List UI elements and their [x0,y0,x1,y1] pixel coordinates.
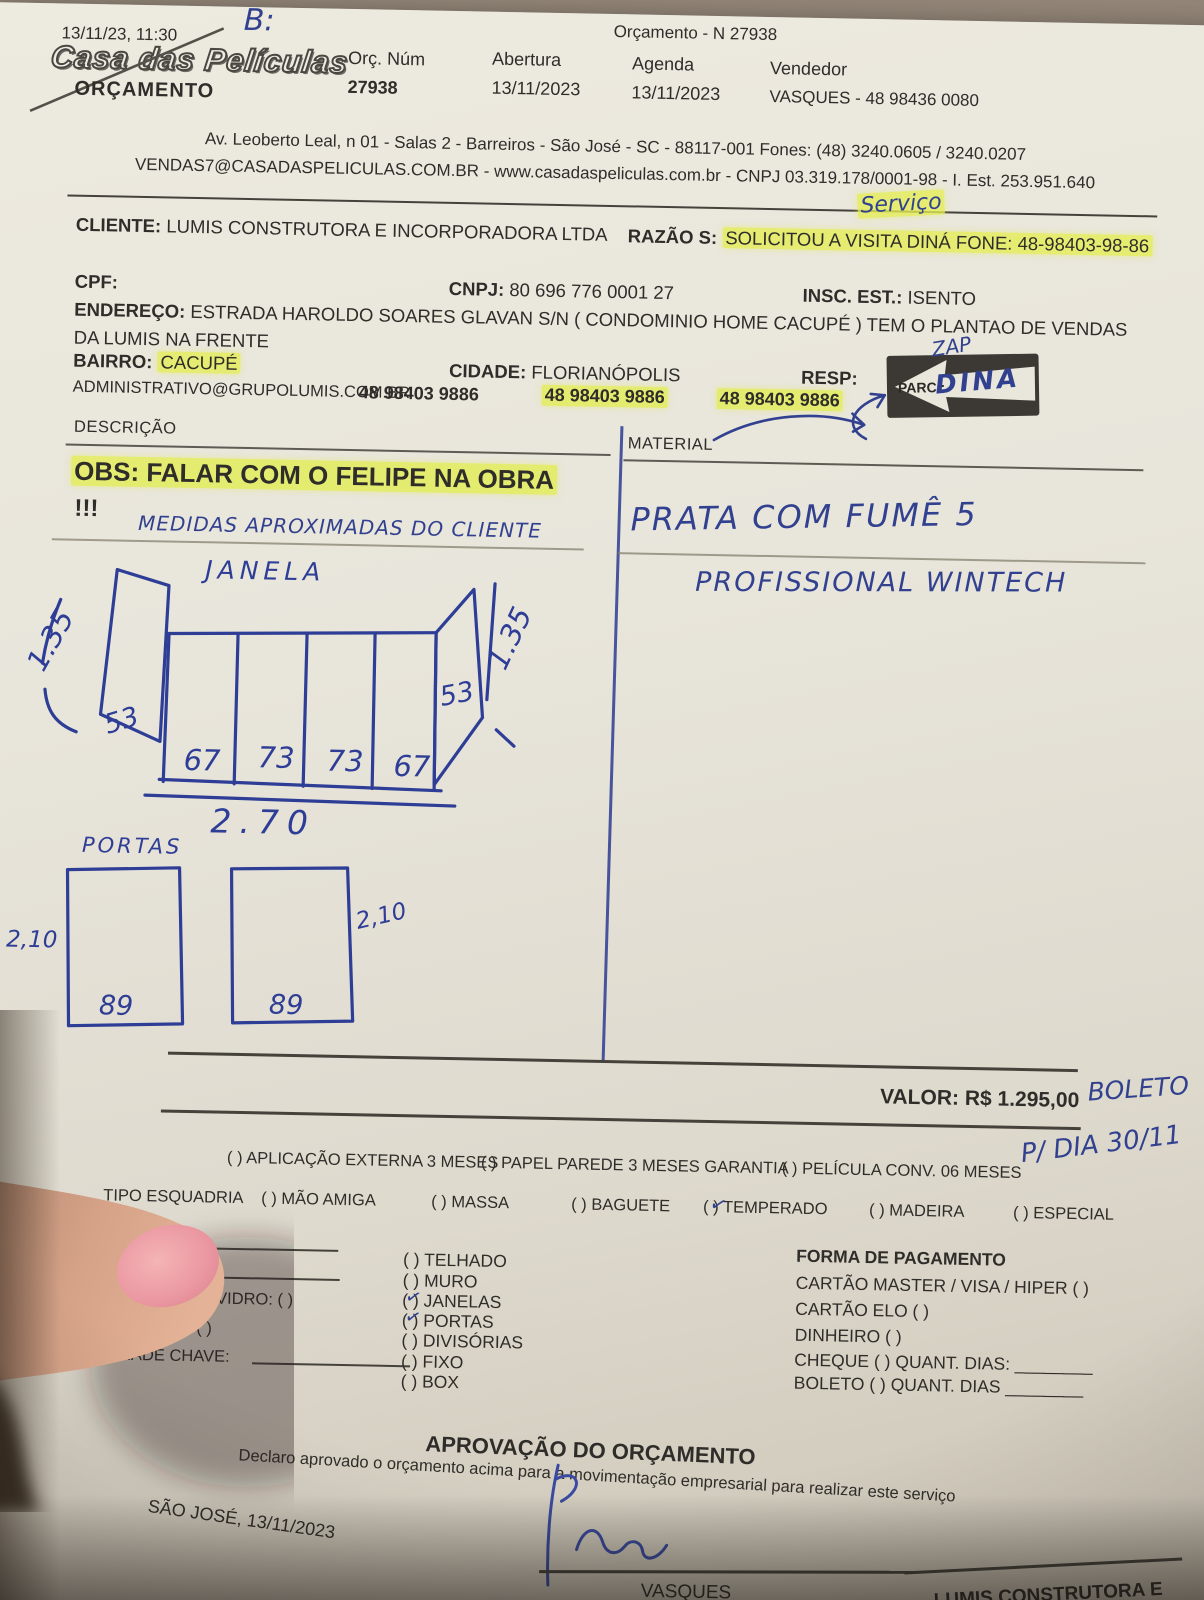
client-signature-name: LUMIS CONSTRUTORA E [933,1579,1163,1600]
valor-value: R$ 1.295,00 [965,1087,1080,1112]
insc-row: INSC. EST.: ISENTO [802,285,976,310]
cpf-label: CPF: [75,271,119,294]
insc-value: ISENTO [907,287,976,309]
cliente-label: CLIENTE: [76,214,162,237]
window-height-right: 1.35 [481,602,539,675]
door-2-width: 89 [269,990,304,1022]
payment-title: FORMA DE PAGAMENTO [796,1246,1006,1271]
cidade-value: FLORIANÓPOLIS [531,361,680,385]
endereco-label: ENDEREÇO: [74,299,185,322]
payment-option-dinheiro: DINHEIRO ( ) [794,1325,901,1348]
handwritten-material-note-1: PRATA COM FUMÊ 5 [630,495,978,538]
thumb-holding-paper [0,1142,294,1512]
window-panel-4: 67 [393,749,431,784]
valor-top-rule [168,1052,1078,1072]
material-column-rule [618,552,1146,564]
handwritten-material-note-2: PROFISSIONAL WINTECH [695,567,1067,599]
bairro-row: BAIRRO: CACUPÉ [73,350,241,375]
payment-option-master: CARTÃO MASTER / VISA / HIPER ( ) [795,1273,1089,1300]
cnpj-row: CNPJ: 80 696 776 0001 27 [449,278,675,304]
field-orc-num-label: Orç. Núm [348,48,425,70]
bairro-label: BAIRRO: [73,350,153,373]
esquadria-option-especial: ( ) ESPECIAL [1013,1204,1114,1225]
field-vendedor-value: VASQUES - 48 98436 0080 [769,87,979,111]
pen-scribble-b: B: [244,3,275,39]
material-underline [623,459,1143,471]
handwritten-service-note: Serviço [857,189,945,218]
sketch-right-tick [496,730,514,746]
razao-value: SOLICITOU A VISITA DINÁ FONE: 48-98403-9… [722,227,1152,256]
cliente-value: LUMIS CONSTRUTORA E INCORPORADORA LTDA [166,215,608,244]
hand-shadow-below [0,1378,40,1512]
cnpj-value: 80 696 776 0001 27 [509,279,674,303]
door-height-left: 2,10 [6,926,58,953]
bairro-value: CACUPÉ [157,351,240,374]
doors-sketch: PORTAS 2,10 2,10 89 89 [2,824,476,1045]
field-vendedor-label: Vendedor [770,58,847,80]
handwritten-sketch-title: MEDIDAS APROXIMADAS DO CLIENTE [138,511,542,543]
door-height-right: 2,10 [353,898,409,935]
garantia-option-papel: ( ) PAPEL PAREDE 3 MESES GARANTIA [481,1154,789,1179]
handwritten-boleto-note: BOLETO [1087,1071,1190,1107]
document-type: ORÇAMENTO [74,78,214,104]
razao-row: RAZÃO S: SOLICITOU A VISITA DINÁ FONE: 4… [627,220,1156,263]
garantia-option-pelicula: ( ) PELÍCULA CONV. 06 MESES [782,1159,1022,1183]
window-panel-1: 67 [183,743,221,778]
field-orc-num-value: 27938 [347,77,397,99]
payment-option-boleto: BOLETO ( ) QUANT. DIAS ________ [794,1373,1084,1400]
window-side-left: 53 [101,701,143,741]
window-label: JANELA [200,555,326,586]
vendor-signature-scribble [518,1456,691,1594]
obs-exclamations: !!! [74,495,99,523]
pen-slash-through-logo [24,17,236,121]
client-signature-line [904,1557,1182,1574]
esquadria-option-madeira: ( ) MADEIRA [869,1201,965,1222]
check-item-divisorias: ( ) DIVISÓRIAS [401,1330,523,1353]
doors-label: PORTAS [82,833,183,859]
window-sketch: JANELA 1.35 1.35 53 53 67 73 73 67 2.70 [12,541,597,844]
obs-note-text: OBS: FALAR COM O FELIPE NA OBRA [71,456,558,495]
check-item-fixo: ( ) FIXO [401,1351,464,1373]
obs-note: OBS: FALAR COM O FELIPE NA OBRA [71,456,558,496]
field-abertura-value: 13/11/2023 [491,78,580,101]
cnpj-label: CNPJ: [449,278,505,300]
sketch-left-bracket-bottom [44,689,77,732]
check-item-box: ( ) BOX [401,1371,460,1393]
pen-column-divider [602,426,623,1062]
cidade-row: CIDADE: FLORIANÓPOLIS [449,360,681,386]
document-reference: Orçamento - N 27938 [613,22,777,45]
window-panel-3: 73 [326,744,364,779]
descricao-underline [66,444,611,456]
window-side-right: 53 [437,676,477,713]
material-column-header: MATERIAL [628,434,714,455]
valor-bottom-rule [161,1109,1081,1129]
field-abertura-label: Abertura [492,49,561,71]
razao-label: RAZÃO S: [628,225,718,248]
window-panel-2: 73 [257,740,295,775]
sketch-front-top [168,628,436,639]
photo-of-budget-form: 13/11/23, 11:30 B: Orçamento - N 27938 C… [0,0,1204,1600]
insc-label: INSC. EST.: [802,285,902,308]
payment-option-elo: CARTÃO ELO ( ) [795,1299,929,1323]
esquadria-option-baguete: ( ) BAGUETE [571,1195,670,1216]
client-phone-2: 48 98403 9886 [541,385,668,408]
payment-option-cheque: CHEQUE ( ) QUANT. DIAS: ________ [794,1350,1093,1377]
valor-row: VALOR: R$ 1.295,00 [783,1083,1079,1113]
descricao-column-header: DESCRIÇÃO [74,418,177,439]
check-item-telhado: ( ) TELHADO [403,1249,507,1272]
cidade-label: CIDADE: [449,360,526,382]
cliente-row: CLIENTE: LUMIS CONSTRUTORA E INCORPORADO… [76,210,626,250]
esquadria-option-massa: ( ) MASSA [431,1193,509,1213]
field-agenda-label: Agenda [632,53,694,75]
window-height-left: 1.35 [20,604,81,677]
door-1-width: 89 [99,990,134,1022]
valor-label: VALOR: [880,1085,959,1110]
pen-arrow-under-phones [706,400,879,449]
field-agenda-value: 13/11/2023 [631,82,720,105]
vendor-signature-name: VASQUES [641,1581,732,1600]
client-phone-1: 48 98403 9886 [359,382,480,405]
